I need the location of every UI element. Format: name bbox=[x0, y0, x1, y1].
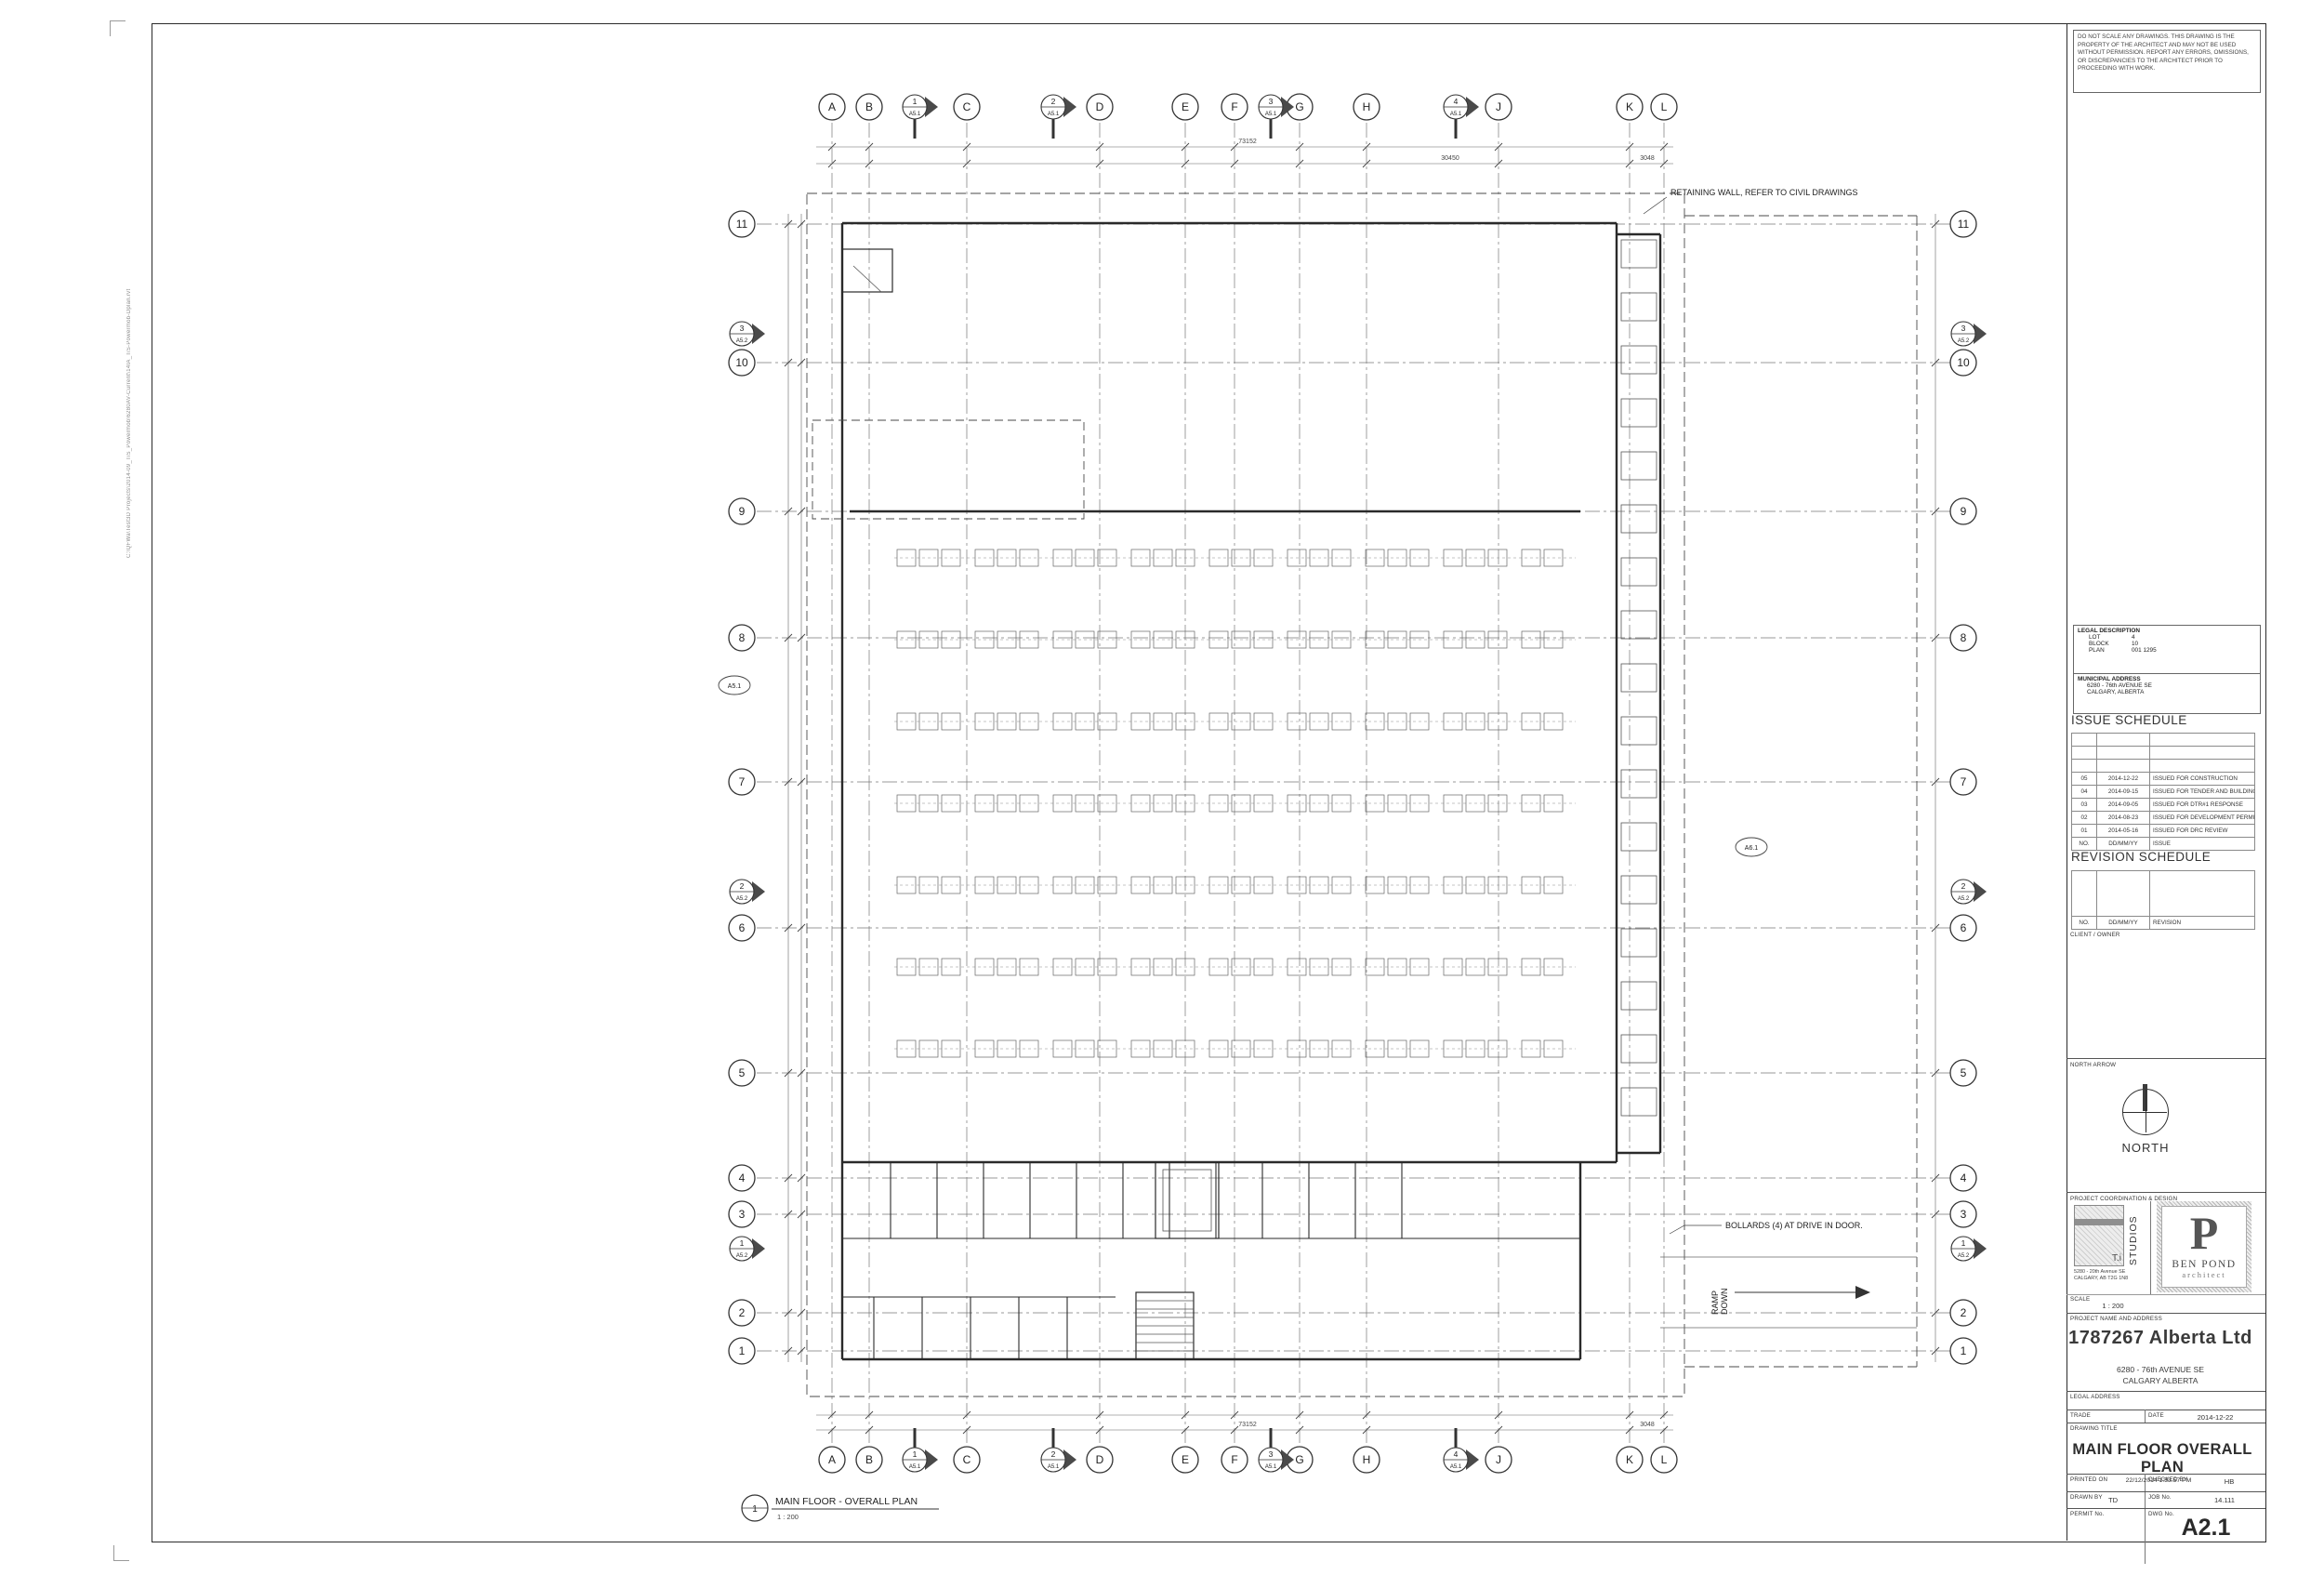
sheet-border bbox=[152, 23, 2266, 1542]
job-no-value: 14.111 bbox=[2197, 1496, 2252, 1504]
architect-word: architect bbox=[2162, 1270, 2246, 1279]
legal-row: PLAN001 1295 bbox=[2078, 647, 2256, 654]
issue-row: 012014-05-16ISSUED FOR DRC REVIEW bbox=[2072, 825, 2255, 838]
issue-row: 042014-09-15ISSUED FOR TENDER AND BUILDI… bbox=[2072, 786, 2255, 799]
date-label: DATE bbox=[2148, 1412, 2164, 1419]
drawing-title: MAIN FLOOR OVERALL PLAN bbox=[2067, 1441, 2258, 1476]
legal-description-heading: LEGAL DESCRIPTION bbox=[2078, 628, 2256, 634]
date-value: 2014-12-22 bbox=[2178, 1413, 2252, 1422]
municipal-address-line2: CALGARY, ALBERTA bbox=[2078, 689, 2256, 695]
studio-logo: T.i bbox=[2074, 1205, 2124, 1266]
project-address-line1: 6280 - 76th AVENUE SE bbox=[2067, 1365, 2254, 1374]
studio-mark: T.i bbox=[2112, 1253, 2121, 1264]
issue-row: 032014-09-05ISSUED FOR DTR#1 RESPONSE bbox=[2072, 799, 2255, 812]
trim-mark-bottom-left bbox=[113, 1545, 129, 1561]
issue-empty-row bbox=[2072, 734, 2255, 747]
issue-footer-row: NO.DD/MM/YYISSUE bbox=[2072, 838, 2255, 851]
drawn-by-value: TD bbox=[2085, 1496, 2141, 1504]
municipal-address-heading: MUNICIPAL ADDRESS bbox=[2078, 676, 2256, 682]
drawing-sheet: { "sheet": { "disclaimer": "DO NOT SCALE… bbox=[0, 0, 2324, 1575]
issue-schedule-table: 052014-12-22ISSUED FOR CONSTRUCTION04201… bbox=[2071, 733, 2255, 851]
revision-schedule-table: NO.DD/MM/YYREVISION bbox=[2071, 870, 2255, 930]
architect-logo: P BEN POND architect bbox=[2157, 1201, 2251, 1292]
permit-no-label: PERMIT No. bbox=[2070, 1511, 2105, 1517]
north-caption: NORTH bbox=[2119, 1141, 2172, 1155]
studio-wordmark: STUDIOS bbox=[2128, 1208, 2141, 1265]
municipal-address-line1: 6280 - 76th AVENUE SE bbox=[2078, 682, 2256, 689]
issue-row: 022014-08-23ISSUED FOR DEVELOPMENT PERMI… bbox=[2072, 812, 2255, 825]
project-address-line2: CALGARY ALBERTA bbox=[2067, 1376, 2254, 1385]
title-block: DO NOT SCALE ANY DRAWINGS. THIS DRAWING … bbox=[2067, 23, 2265, 1541]
legal-row: LOT4 bbox=[2078, 634, 2256, 641]
studio-address: 5280 - 20th Avenue SE CALGARY, AB T2G 1N… bbox=[2074, 1269, 2158, 1283]
job-no-label: JOB No. bbox=[2148, 1494, 2172, 1501]
trade-label: TRADE bbox=[2070, 1412, 2091, 1419]
revision-schedule-heading: REVISION SCHEDULE bbox=[2071, 850, 2211, 864]
file-path-note: C:\QFWa\Test3D Projects\2014-09_TiS_Powe… bbox=[126, 167, 139, 558]
scale-value: 1 : 200 bbox=[2076, 1302, 2150, 1310]
project-name: 1787267 Alberta Ltd bbox=[2067, 1328, 2254, 1349]
legal-description-rows: LOT4BLOCK10PLAN001 1295 bbox=[2078, 634, 2256, 654]
disclaimer-note: DO NOT SCALE ANY DRAWINGS. THIS DRAWING … bbox=[2073, 30, 2261, 93]
legal-description-box: LEGAL DESCRIPTION LOT4BLOCK10PLAN001 129… bbox=[2073, 625, 2261, 679]
north-arrow-label: NORTH ARROW bbox=[2070, 1062, 2116, 1068]
north-arrow-icon bbox=[2122, 1089, 2169, 1135]
trim-mark-top-left bbox=[110, 20, 125, 36]
legal-address-label: LEGAL ADDRESS bbox=[2070, 1394, 2120, 1400]
drawing-title-label: DRAWING TITLE bbox=[2070, 1425, 2118, 1432]
dwg-no-value: A2.1 bbox=[2152, 1515, 2260, 1542]
checked-by-label: CHECKED BY bbox=[2148, 1476, 2187, 1483]
revision-footer-row: NO.DD/MM/YYREVISION bbox=[2072, 917, 2255, 930]
legal-row: BLOCK10 bbox=[2078, 641, 2256, 647]
issue-schedule-heading: ISSUE SCHEDULE bbox=[2071, 713, 2187, 727]
architect-name: BEN POND bbox=[2162, 1259, 2246, 1270]
municipal-address-box: MUNICIPAL ADDRESS 6280 - 76th AVENUE SE … bbox=[2073, 673, 2261, 714]
checked-by-value: HB bbox=[2206, 1477, 2252, 1486]
project-label: PROJECT NAME AND ADDRESS bbox=[2070, 1316, 2162, 1322]
client-owner-label: CLIENT / OWNER bbox=[2070, 932, 2120, 938]
revision-empty-row bbox=[2072, 871, 2255, 917]
issue-empty-row bbox=[2072, 747, 2255, 760]
architect-initial: P bbox=[2162, 1207, 2246, 1259]
issue-empty-row bbox=[2072, 760, 2255, 773]
issue-row: 052014-12-22ISSUED FOR CONSTRUCTION bbox=[2072, 773, 2255, 786]
